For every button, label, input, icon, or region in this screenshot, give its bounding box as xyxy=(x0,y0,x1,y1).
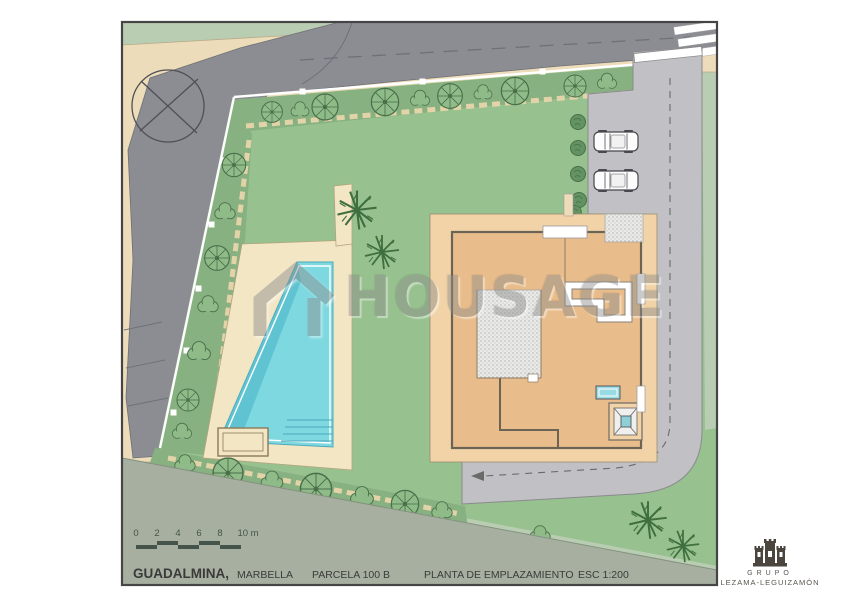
drawing-title-label: PLANTA DE EMPLAZAMIENTO xyxy=(424,569,574,581)
city-label: MARBELLA xyxy=(237,569,293,581)
scale-label: 4 xyxy=(175,528,180,539)
scale-label: 2 xyxy=(154,528,159,539)
company-branding: GRUPO LEZAMA-LEGUIZAMÓN xyxy=(700,538,840,587)
scale-ratio-label: ESC 1:200 xyxy=(578,569,629,581)
parcel-label: PARCELA 100 B xyxy=(312,569,390,581)
spa-feature xyxy=(596,386,620,399)
brand-name-label: LEZAMA-LEGUIZAMÓN xyxy=(700,578,840,587)
entrance-opening xyxy=(543,226,587,238)
entry-path xyxy=(564,194,573,216)
crest-icon xyxy=(752,538,788,568)
site-plan-drawing: 0 2 4 6 8 10 m GUADALMINA, MARBELLA PARC… xyxy=(0,0,848,600)
site-plan-page: 0 2 4 6 8 10 m GUADALMINA, MARBELLA PARC… xyxy=(0,0,848,600)
brand-group-label: GRUPO xyxy=(700,570,840,577)
inner-patio xyxy=(477,290,541,378)
car-icon xyxy=(594,130,638,153)
entrance-porch xyxy=(605,214,643,242)
scale-label: 0 xyxy=(133,528,138,539)
scale-label: 8 xyxy=(217,528,222,539)
car-icon xyxy=(594,169,638,192)
house xyxy=(430,194,657,462)
scale-label: 6 xyxy=(196,528,201,539)
title-block: GUADALMINA, MARBELLA PARCELA 100 B PLANT… xyxy=(133,566,629,581)
location-title: GUADALMINA, xyxy=(133,566,229,581)
pool-side-platform xyxy=(218,428,268,456)
scale-label: 10 m xyxy=(237,528,258,539)
